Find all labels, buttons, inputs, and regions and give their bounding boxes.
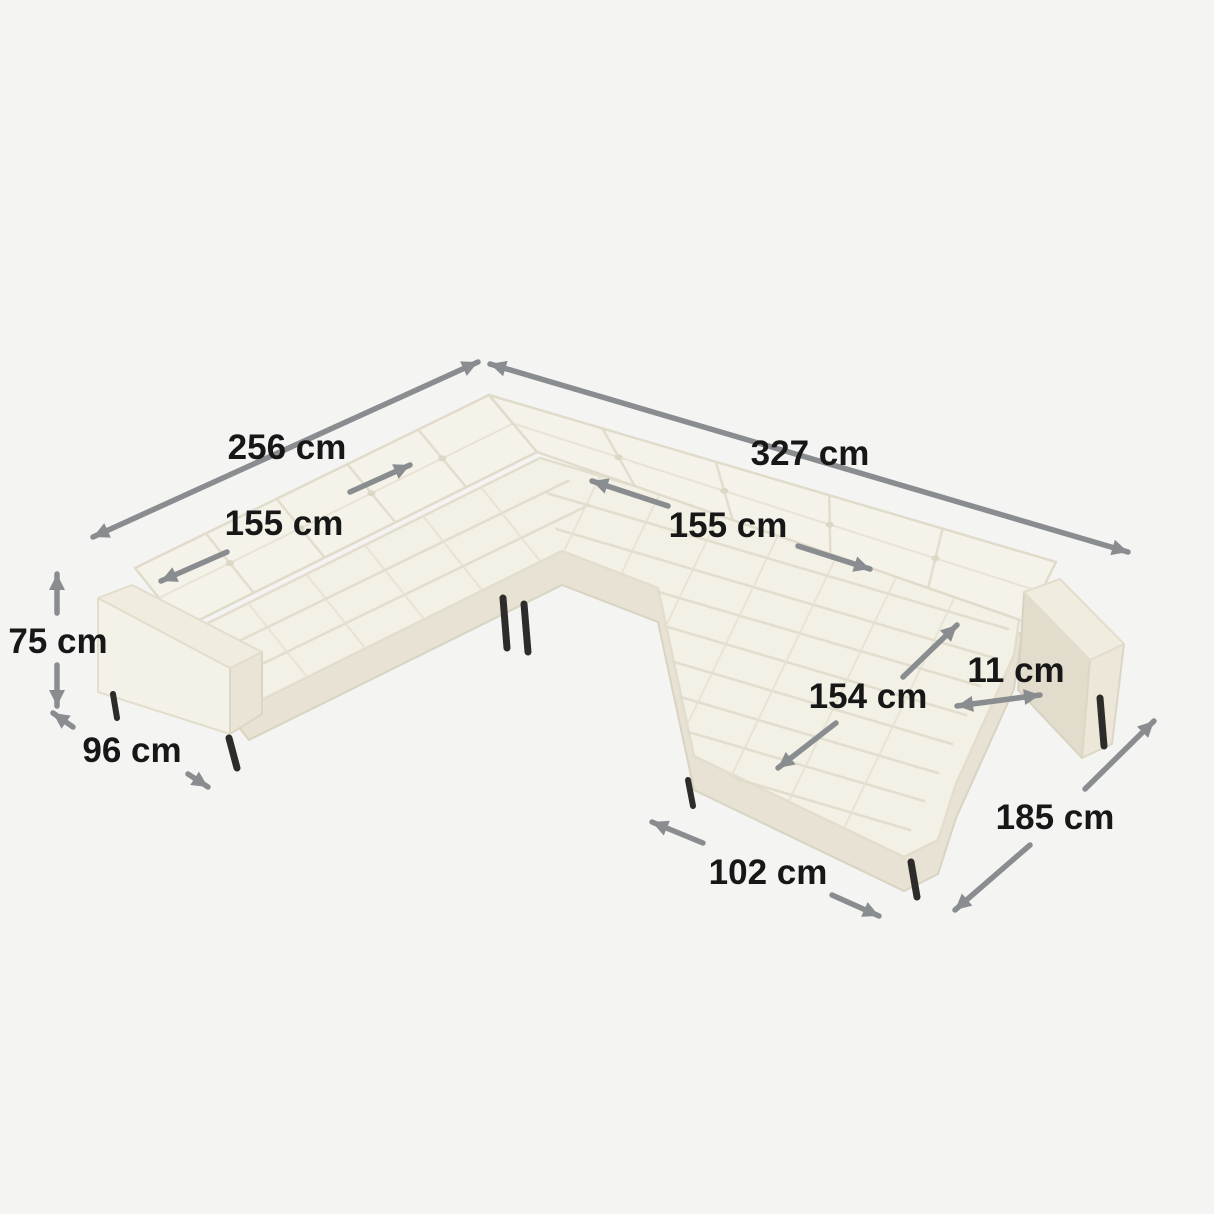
diagram-canvas: 256 cm 327 cm 155 cm 155 cm 75 cm 96 cm … [0, 0, 1214, 1214]
label-256: 256 cm [228, 428, 347, 467]
sofa-dimension-diagram: 256 cm 327 cm 155 cm 155 cm 75 cm 96 cm … [0, 0, 1214, 1214]
label-154: 154 cm [809, 677, 928, 716]
label-96: 96 cm [82, 731, 181, 770]
label-185: 185 cm [996, 798, 1115, 837]
label-102: 102 cm [709, 853, 828, 892]
label-327: 327 cm [751, 434, 870, 473]
label-75: 75 cm [8, 622, 107, 661]
label-155-left: 155 cm [225, 504, 344, 543]
label-155-right: 155 cm [669, 506, 788, 545]
label-11: 11 cm [967, 651, 1064, 690]
